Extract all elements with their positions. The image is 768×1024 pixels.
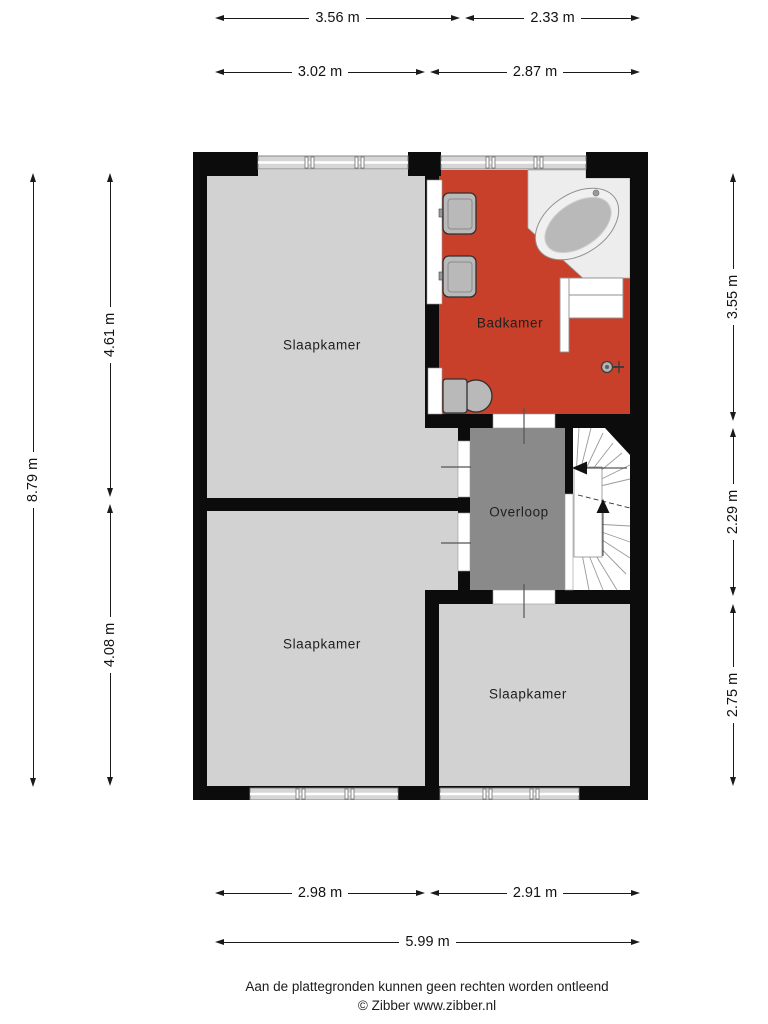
wall-right (630, 152, 648, 800)
dimension-bottom-outer: 5.99 m (215, 935, 640, 949)
dimension-top-inner-left: 3.02 m (215, 65, 425, 79)
room-label-landing: Overloop (489, 505, 549, 520)
wall-bottom-corner-right (586, 786, 648, 800)
toilet-panel (428, 368, 442, 414)
dimension-left-upper: 4.61 m (103, 173, 117, 497)
room-label-bedroom-top-left: Slaapkamer (283, 338, 361, 353)
wall-bedrooms-divider-v (425, 590, 439, 800)
floorplan-drawing (193, 152, 648, 800)
wall-bedrooms-divider-h (193, 498, 470, 511)
dimension-left-lower: 4.08 m (103, 504, 117, 786)
window-top-left (258, 156, 408, 169)
door-bedroom-top-left (458, 441, 470, 497)
window-top-right (441, 156, 586, 169)
sink-icon (439, 193, 476, 234)
footer-copyright: © Zibber www.zibber.nl (86, 996, 768, 1015)
dimension-left-outer: 8.79 m (26, 173, 40, 787)
window-bottom-left (250, 788, 398, 800)
dimension-bottom-left: 2.98 m (215, 886, 425, 900)
dimension-right-upper: 3.55 m (726, 173, 740, 421)
wall-left (193, 152, 207, 800)
dimension-top-inner-right: 2.87 m (430, 65, 640, 79)
dimension-right-middle: 2.29 m (726, 428, 740, 596)
dimension-top-outer-left: 3.56 m (215, 11, 460, 25)
window-bottom-right (440, 788, 579, 800)
wall-bottom-corner-left (193, 786, 250, 800)
room-bedroom-top-left (207, 170, 458, 498)
floorplan-page: Slaapkamer Badkamer Overloop Slaapkamer … (0, 0, 768, 1024)
wall-stairs-left (565, 428, 573, 494)
stairs-entry (565, 494, 573, 590)
wall-top-corner-left (193, 152, 258, 176)
wall-top-corner-right (586, 152, 648, 178)
footer-disclaimer: Aan de plattegronden kunnen geen rechten… (86, 977, 768, 996)
room-label-bedroom-bottom-right: Slaapkamer (489, 687, 567, 702)
dimension-top-outer-right: 2.33 m (465, 11, 640, 25)
sink-icon (439, 256, 476, 297)
vanity-panel (427, 180, 442, 304)
footer: Aan de plattegronden kunnen geen rechten… (86, 977, 768, 1015)
dimension-right-lower: 2.75 m (726, 604, 740, 786)
door-bedroom-bottom-left (458, 513, 470, 571)
dimension-bottom-right: 2.91 m (430, 886, 640, 900)
room-label-bedroom-bottom-left: Slaapkamer (283, 637, 361, 652)
toilet-icon (443, 379, 492, 413)
room-label-bathroom: Badkamer (477, 316, 543, 331)
